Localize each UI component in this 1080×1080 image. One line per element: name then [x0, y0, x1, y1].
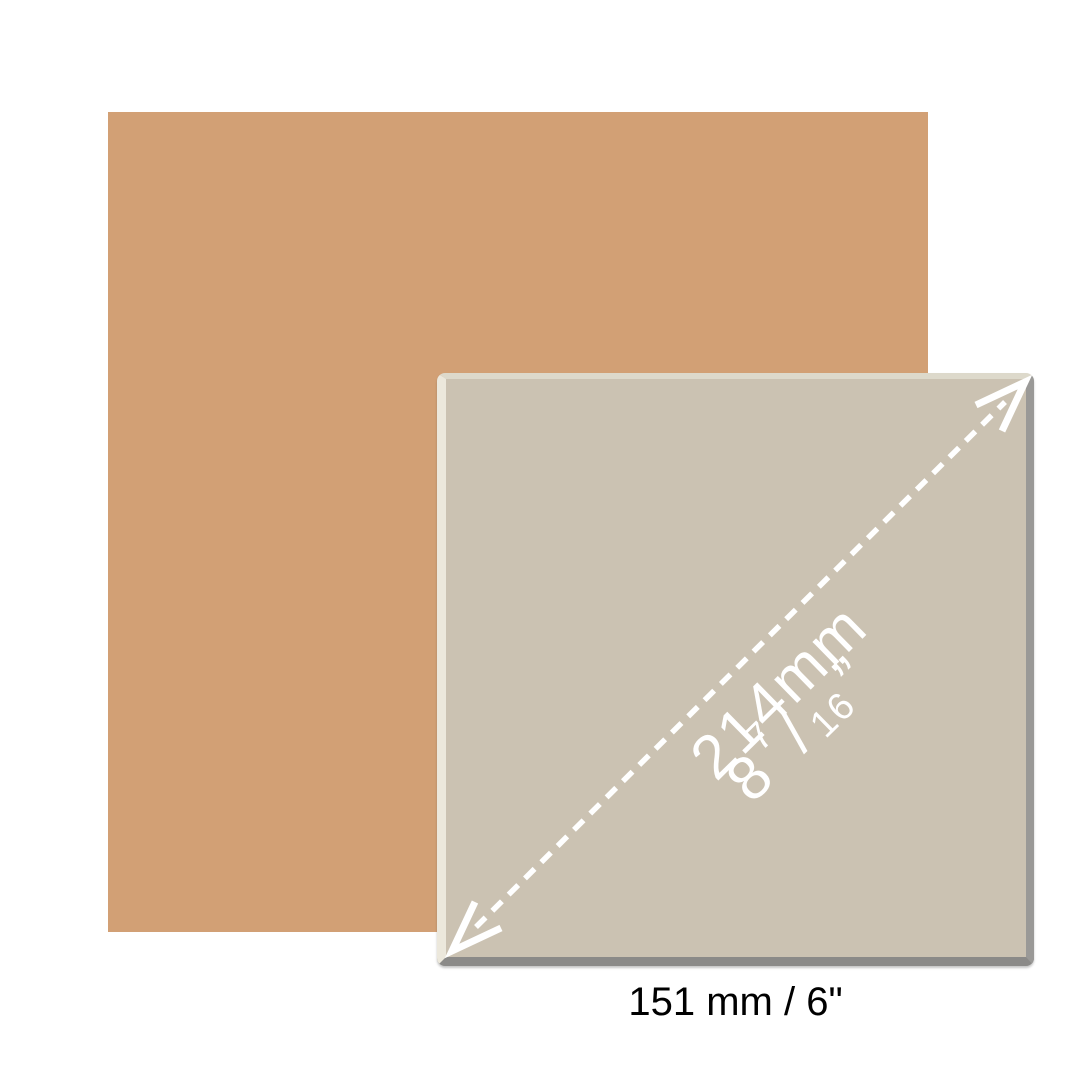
width-caption: 151 mm / 6"	[437, 981, 1034, 1023]
product-dimension-diagram: 214mm 8 7 / 16 ” 151 mm / 6"	[0, 0, 1080, 1080]
diagonal-dimension-line	[476, 402, 1005, 927]
diagonal-dimension-overlay: 214mm 8 7 / 16 ”	[0, 0, 1080, 1080]
